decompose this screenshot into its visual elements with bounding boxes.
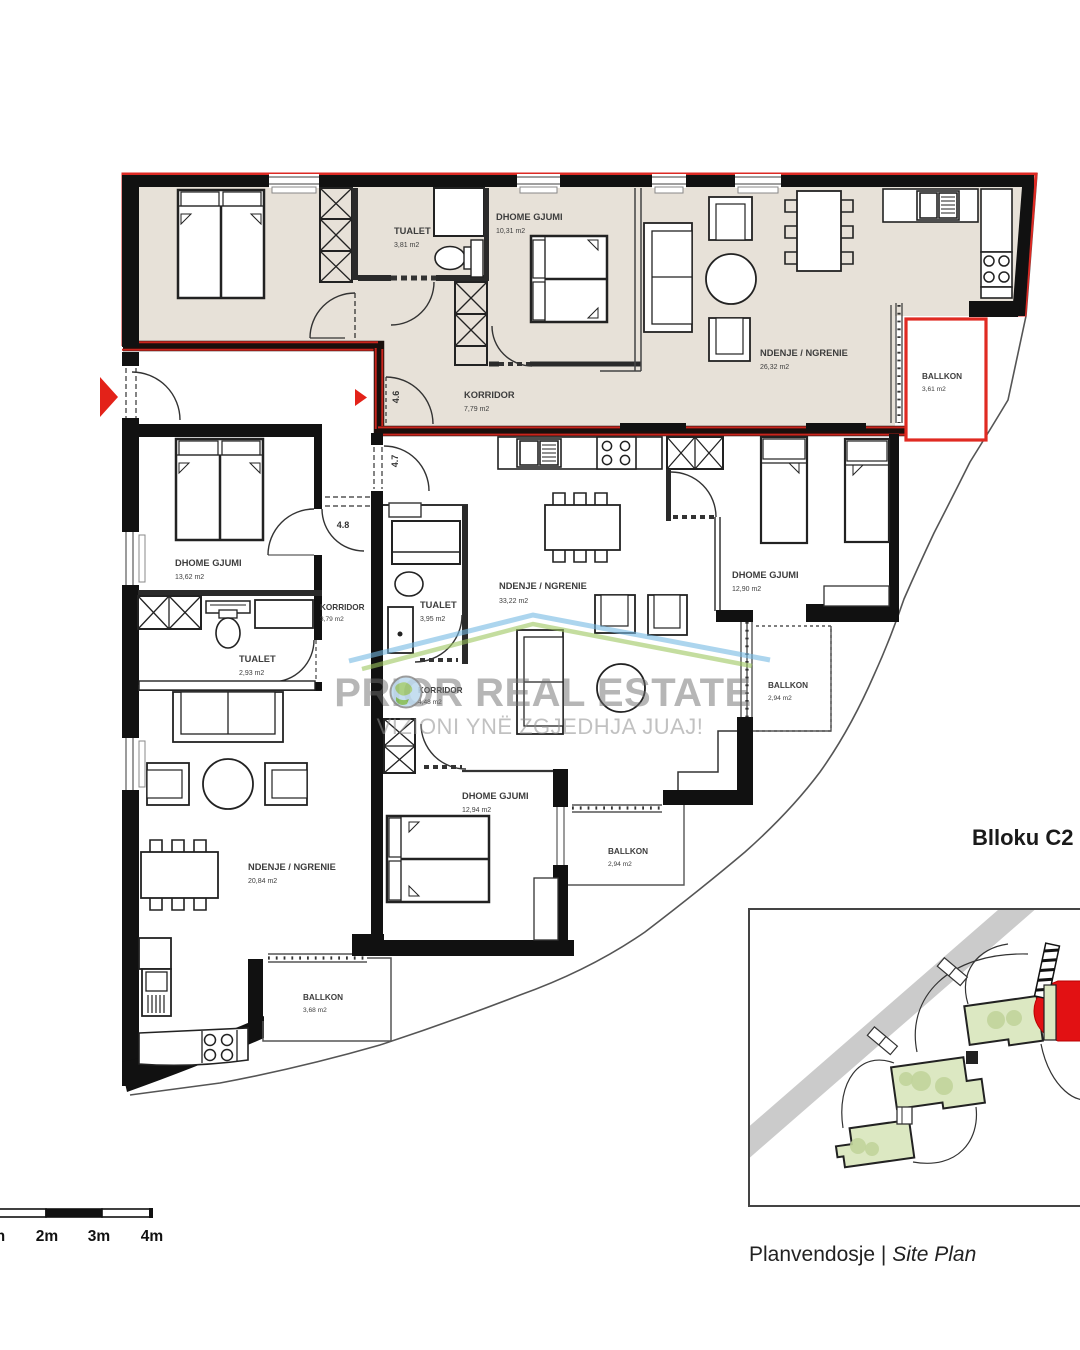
svg-text:DHOME GJUMI: DHOME GJUMI [462,791,529,801]
svg-text:2,94 m2: 2,94 m2 [608,861,632,868]
svg-text:VIZIONI YNË ZGJEDHJA JUAJ!: VIZIONI YNË ZGJEDHJA JUAJ! [377,714,704,739]
svg-text:2,94 m2: 2,94 m2 [768,695,792,702]
svg-text:3,61 m2: 3,61 m2 [922,386,946,393]
svg-text:7,79 m2: 7,79 m2 [464,406,489,413]
svg-text:TUALET: TUALET [394,226,431,236]
svg-text:2,93 m2: 2,93 m2 [239,670,264,677]
svg-text:4.6: 4.6 [391,391,401,404]
svg-text:10,31 m2: 10,31 m2 [496,228,525,235]
svg-text:3,68 m2: 3,68 m2 [303,1007,327,1014]
svg-text:12,90 m2: 12,90 m2 [732,586,761,593]
svg-text:4.8: 4.8 [337,520,350,530]
svg-text:Blloku C2 |: Blloku C2 | [972,825,1080,850]
svg-text:BALLKON: BALLKON [608,847,648,856]
svg-text:26,32 m2: 26,32 m2 [760,364,789,371]
svg-text:DHOME GJUMI: DHOME GJUMI [175,558,242,568]
svg-text:TUALET: TUALET [239,654,276,664]
svg-text:NDENJE / NGRENIE: NDENJE / NGRENIE [248,862,336,872]
svg-text:KORRIDOR: KORRIDOR [464,390,515,400]
svg-text:20,84 m2: 20,84 m2 [248,878,277,885]
svg-text:Planvendosje | Site Plan: Planvendosje | Site Plan [749,1243,976,1266]
svg-text:33,22 m2: 33,22 m2 [499,598,528,605]
svg-text:DHOME GJUMI: DHOME GJUMI [732,570,799,580]
svg-text:BALLKON: BALLKON [303,993,343,1002]
svg-text:1m: 1m [0,1228,5,1245]
svg-text:3,81 m2: 3,81 m2 [394,242,419,249]
svg-text:KORRIDOR: KORRIDOR [320,603,365,612]
svg-text:2m: 2m [36,1228,58,1245]
svg-text:NDENJE / NGRENIE: NDENJE / NGRENIE [760,348,848,358]
svg-text:TUALET: TUALET [420,600,457,610]
svg-text:4m: 4m [141,1228,163,1245]
svg-text:3,79 m2: 3,79 m2 [320,616,344,623]
svg-text:4.7: 4.7 [390,455,400,468]
svg-text:3m: 3m [88,1228,110,1245]
svg-text:BALLKON: BALLKON [768,681,808,690]
svg-text:13,62 m2: 13,62 m2 [175,574,204,581]
svg-text:BALLKON: BALLKON [922,372,962,381]
svg-text:NDENJE / NGRENIE: NDENJE / NGRENIE [499,581,587,591]
svg-text:12,94 m2: 12,94 m2 [462,807,491,814]
svg-text:3,95 m2: 3,95 m2 [420,616,445,623]
svg-text:DHOME GJUMI: DHOME GJUMI [496,212,563,222]
